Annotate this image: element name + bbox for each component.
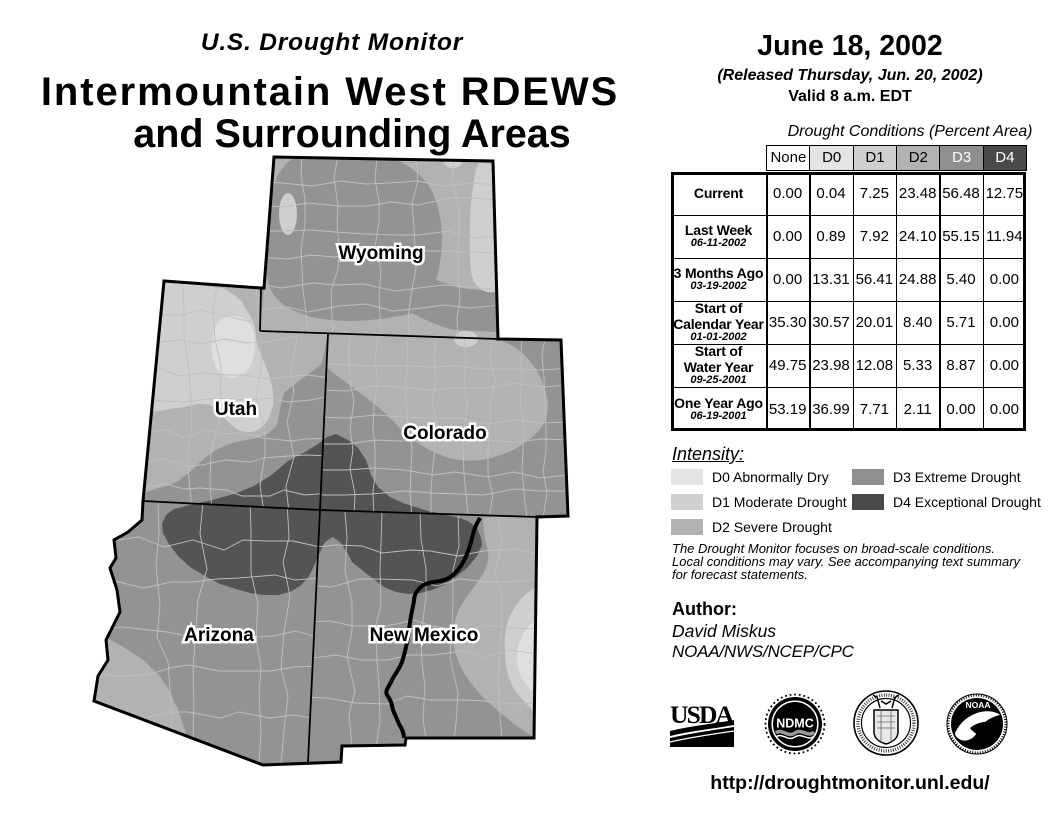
svg-text:New Mexico: New Mexico xyxy=(370,625,479,646)
svg-text:NOAA: NOAA xyxy=(965,700,990,710)
svg-text:Colorado: Colorado xyxy=(403,423,486,444)
svg-text:NDMC: NDMC xyxy=(776,717,814,731)
svg-text:Arizona: Arizona xyxy=(184,625,254,646)
svg-text:Wyoming: Wyoming xyxy=(338,243,423,264)
svg-text:Utah: Utah xyxy=(215,399,257,420)
